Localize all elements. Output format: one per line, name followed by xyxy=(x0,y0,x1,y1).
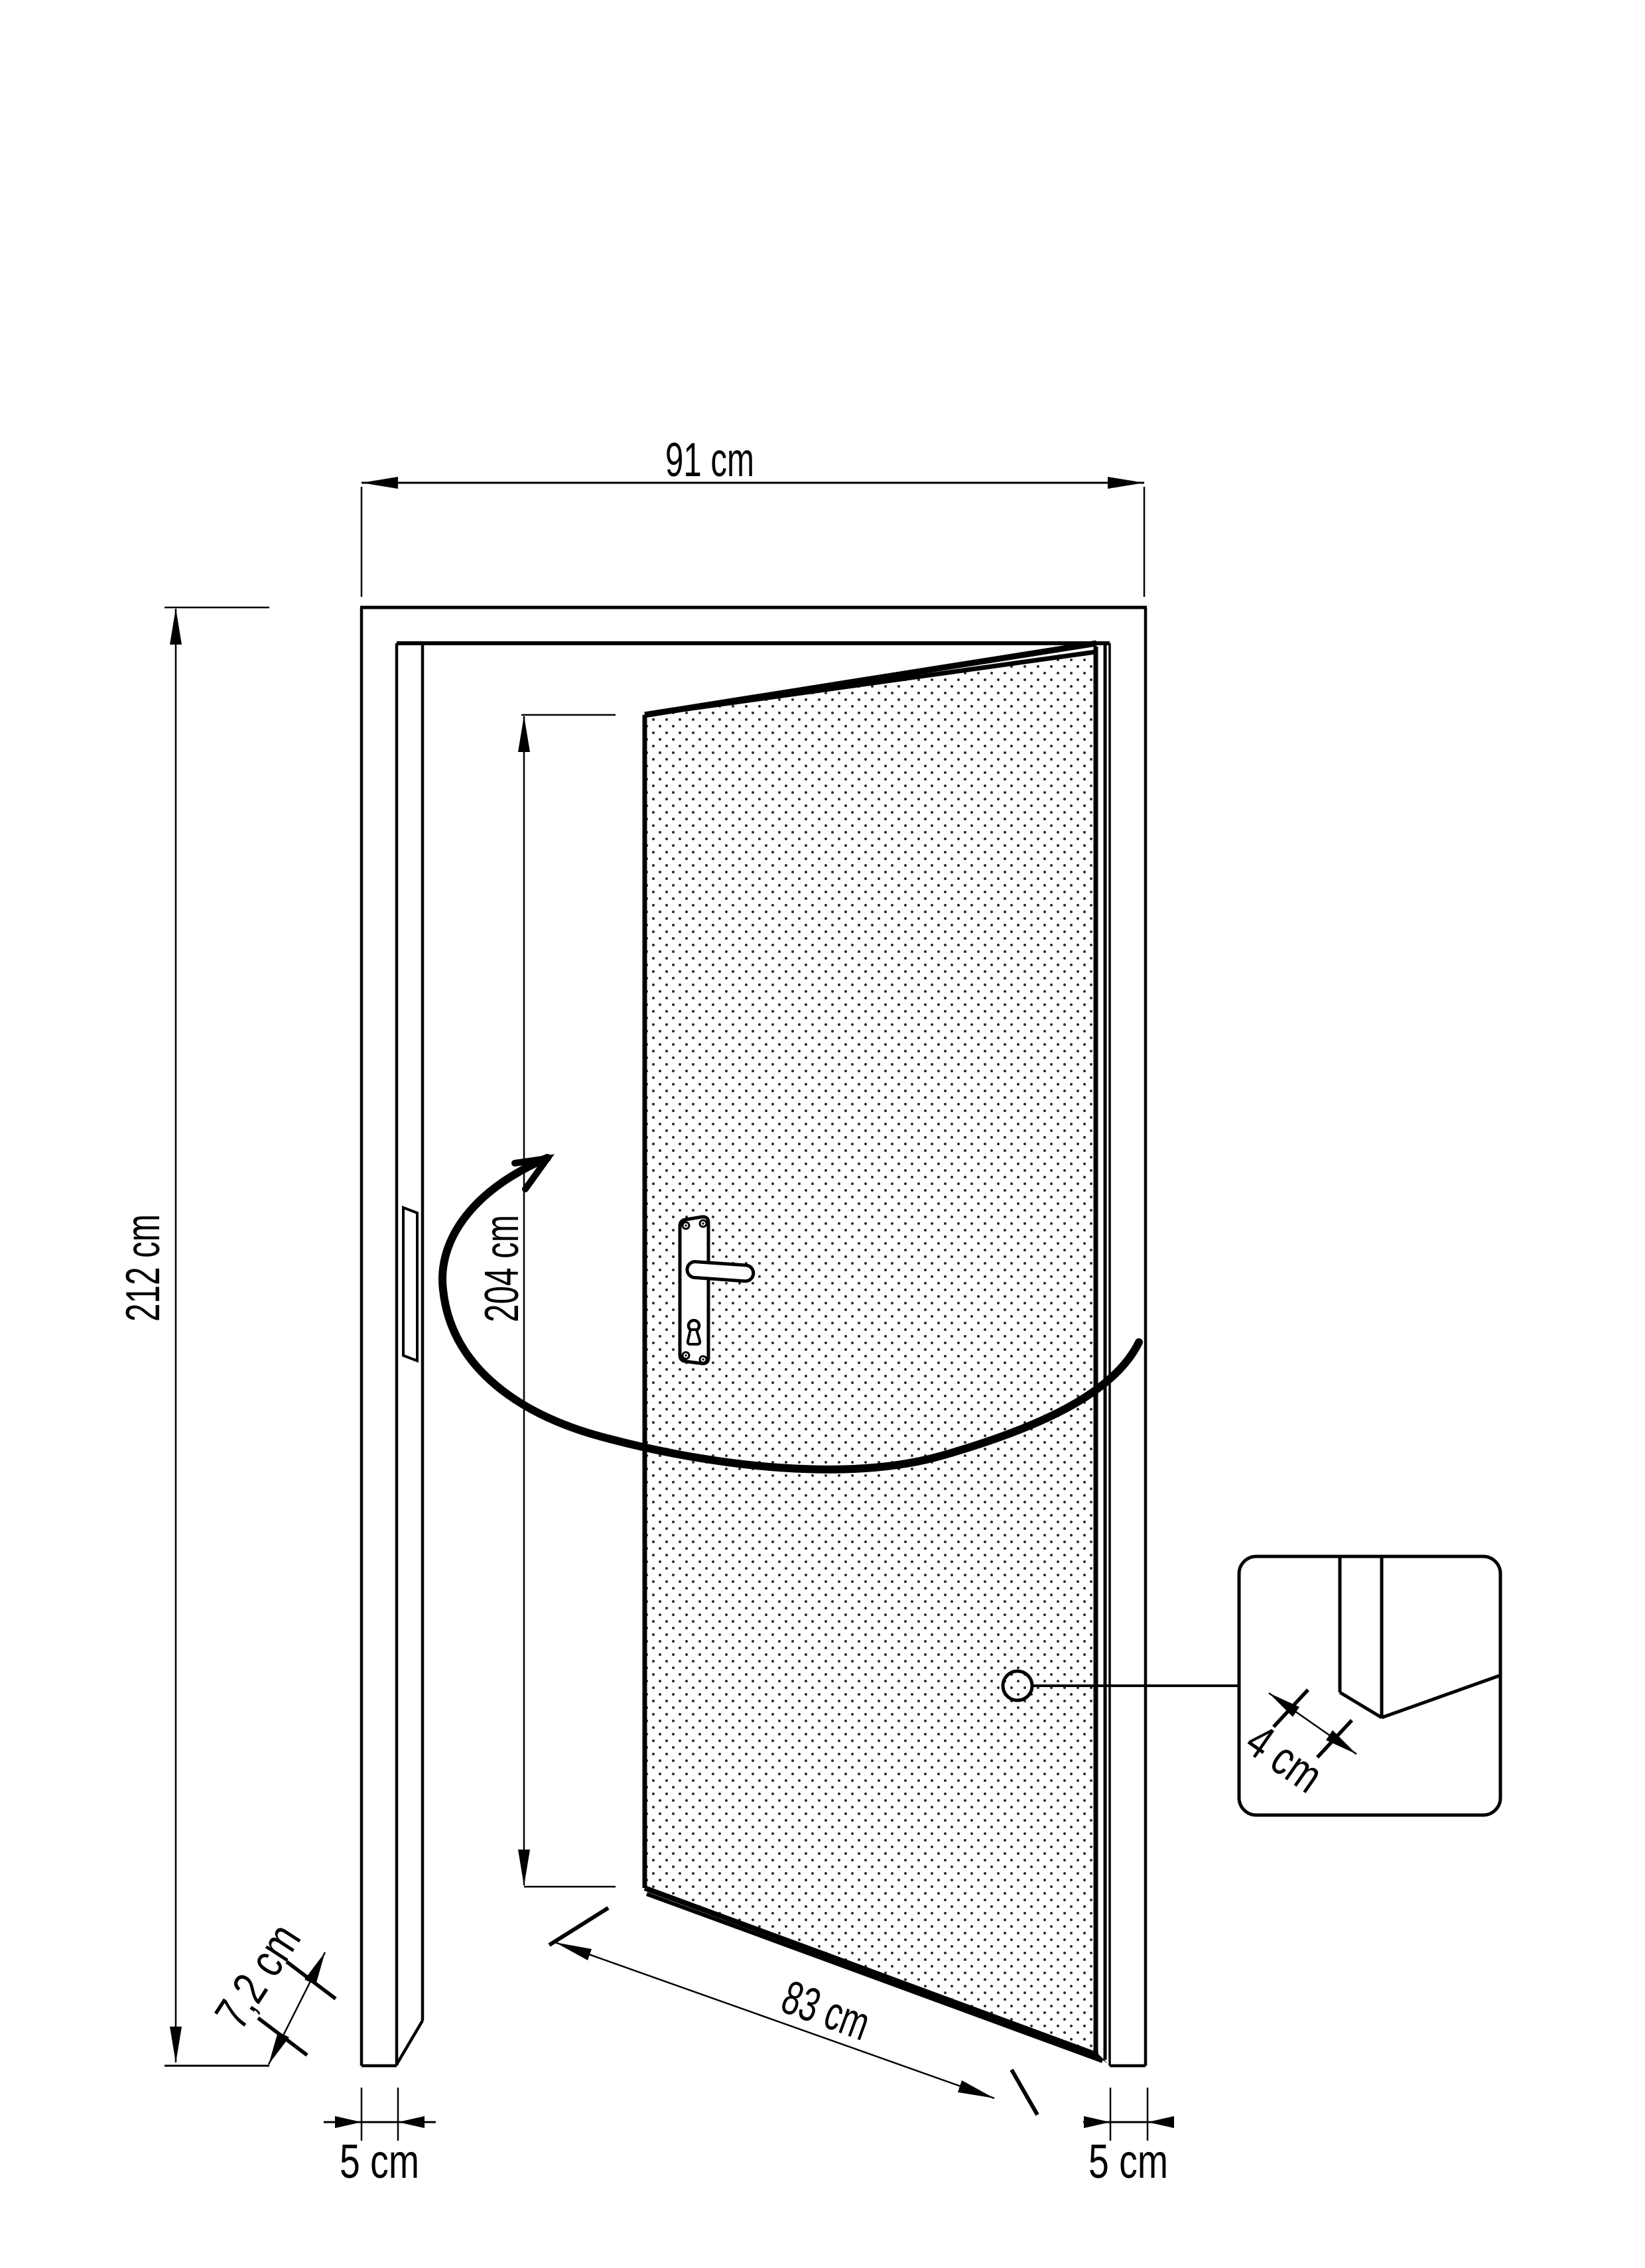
lever-handle-icon xyxy=(687,1261,754,1282)
label-door-width: 83 cm xyxy=(775,1970,876,2050)
label-frame-height: 212 cm xyxy=(117,1214,170,1322)
dim-door-height: 204 cm xyxy=(476,715,616,1887)
dim-frame-height: 212 cm xyxy=(117,607,269,2066)
strike-plate xyxy=(403,1208,417,1361)
label-jamb-left: 5 cm xyxy=(340,2135,419,2188)
dim-jamb-right: 5 cm xyxy=(1083,2088,1174,2188)
label-frame-width: 91 cm xyxy=(665,434,754,487)
dim-frame-width: 91 cm xyxy=(362,434,1144,597)
door-diagram: 91 cm 212 cm 204 cm 83 cm 5 cm xyxy=(0,0,1645,2268)
dim-jamb-left: 5 cm xyxy=(324,2088,436,2188)
label-frame-depth: 7,2 cm xyxy=(205,1915,311,2038)
door-texture xyxy=(645,648,1096,2054)
keyhole-icon xyxy=(688,1320,700,1344)
label-door-height: 204 cm xyxy=(476,1215,529,1322)
dim-frame-depth: 7,2 cm xyxy=(205,1915,336,2064)
door-panel xyxy=(645,643,1108,2063)
label-jamb-right: 5 cm xyxy=(1088,2135,1168,2188)
drawing-canvas: 91 cm 212 cm 204 cm 83 cm 5 cm xyxy=(0,0,1645,2268)
